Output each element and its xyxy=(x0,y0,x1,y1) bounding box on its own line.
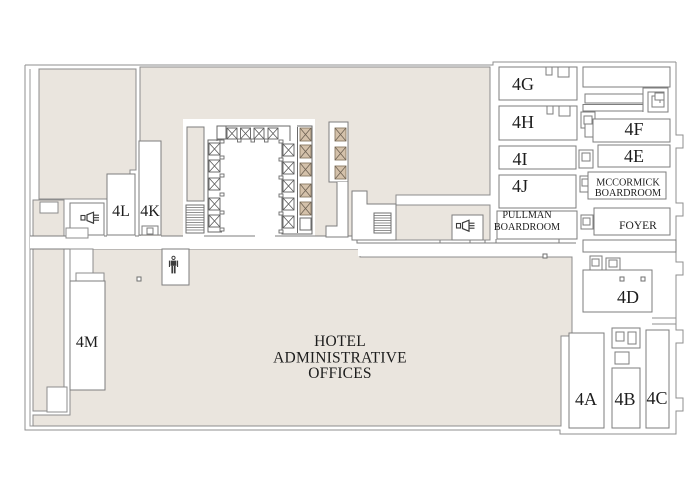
svg-text:4K: 4K xyxy=(140,203,160,220)
svg-text:BOARDROOM: BOARDROOM xyxy=(595,188,661,199)
svg-text:PULLMAN: PULLMAN xyxy=(502,210,552,221)
svg-text:4E: 4E xyxy=(624,146,644,166)
svg-text:4F: 4F xyxy=(624,119,643,139)
svg-text:4L: 4L xyxy=(112,203,130,220)
svg-text:OFFICES: OFFICES xyxy=(308,365,371,382)
svg-text:4I: 4I xyxy=(513,149,528,169)
svg-text:4C: 4C xyxy=(646,388,667,408)
svg-text:4D: 4D xyxy=(617,287,639,307)
svg-text:ADMINISTRATIVE: ADMINISTRATIVE xyxy=(273,350,407,367)
svg-text:4A: 4A xyxy=(575,389,597,409)
svg-text:BOARDROOM: BOARDROOM xyxy=(494,222,560,233)
svg-text:4G: 4G xyxy=(512,74,534,94)
svg-text:HOTEL: HOTEL xyxy=(314,333,366,350)
svg-text:4M: 4M xyxy=(76,334,98,351)
svg-text:4J: 4J xyxy=(512,176,528,196)
svg-text:4H: 4H xyxy=(512,112,534,132)
svg-text:4B: 4B xyxy=(614,389,635,409)
svg-text:FOYER: FOYER xyxy=(619,220,657,232)
svg-text:MCCORMICK: MCCORMICK xyxy=(596,178,660,189)
